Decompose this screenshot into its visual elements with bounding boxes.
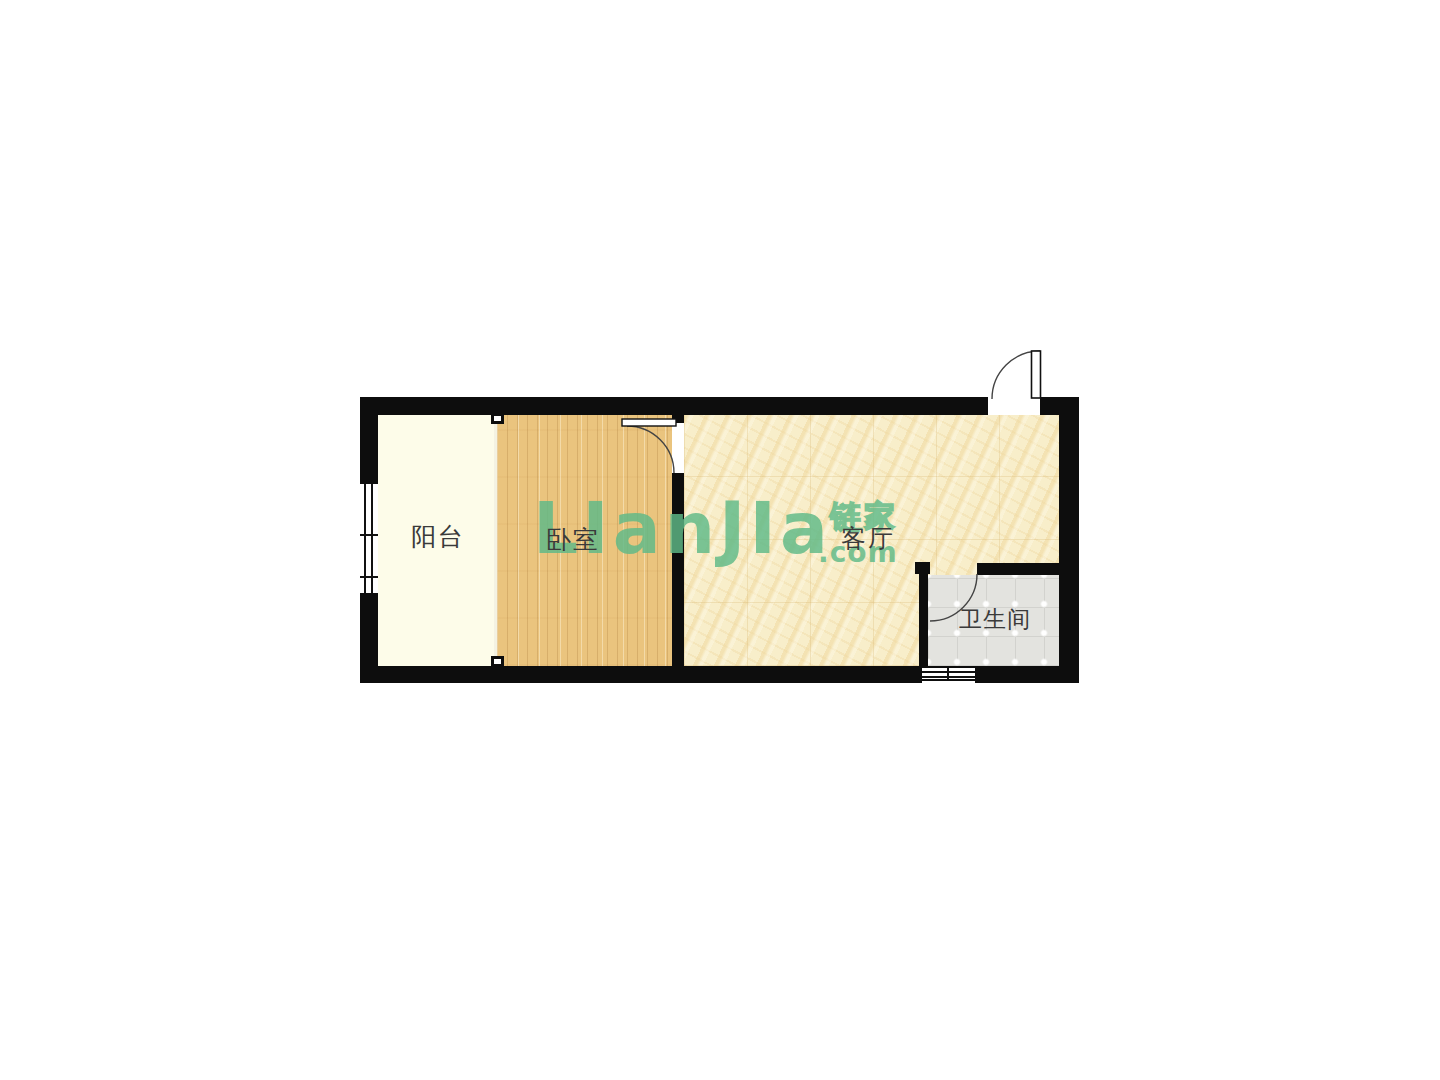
bathroom-wall-top xyxy=(977,563,1059,575)
balcony-label: 阳台 xyxy=(411,520,465,553)
wall-bottom-right-segment xyxy=(975,666,1079,683)
divider-post-top xyxy=(491,413,504,424)
floorplan-canvas: LIanJIa 链家 .com 阳台 卧室 客厅 卫生间 xyxy=(0,0,1440,1080)
wall-right xyxy=(1059,397,1079,683)
bedroom-wall-door-post xyxy=(672,415,684,423)
bedroom-living-wall xyxy=(672,473,684,666)
wall-left-lower-segment xyxy=(360,595,378,683)
entry-door-icon xyxy=(992,351,1041,399)
wall-left-upper-segment xyxy=(360,397,378,482)
wall-top-left-segment xyxy=(360,397,988,415)
bedroom-label: 卧室 xyxy=(546,523,600,556)
floorplan: LIanJIa 链家 .com 阳台 卧室 客厅 卫生间 xyxy=(360,397,1079,683)
living-label: 客厅 xyxy=(841,522,895,555)
wall-bottom-left-segment xyxy=(360,666,922,683)
divider-post-bottom xyxy=(491,656,504,667)
bathroom-label: 卫生间 xyxy=(959,604,1031,635)
bathroom-door-post xyxy=(915,562,930,574)
bathroom-wall-left xyxy=(919,563,928,666)
window-bottom-icon xyxy=(922,666,975,681)
window-left-icon xyxy=(360,482,378,595)
